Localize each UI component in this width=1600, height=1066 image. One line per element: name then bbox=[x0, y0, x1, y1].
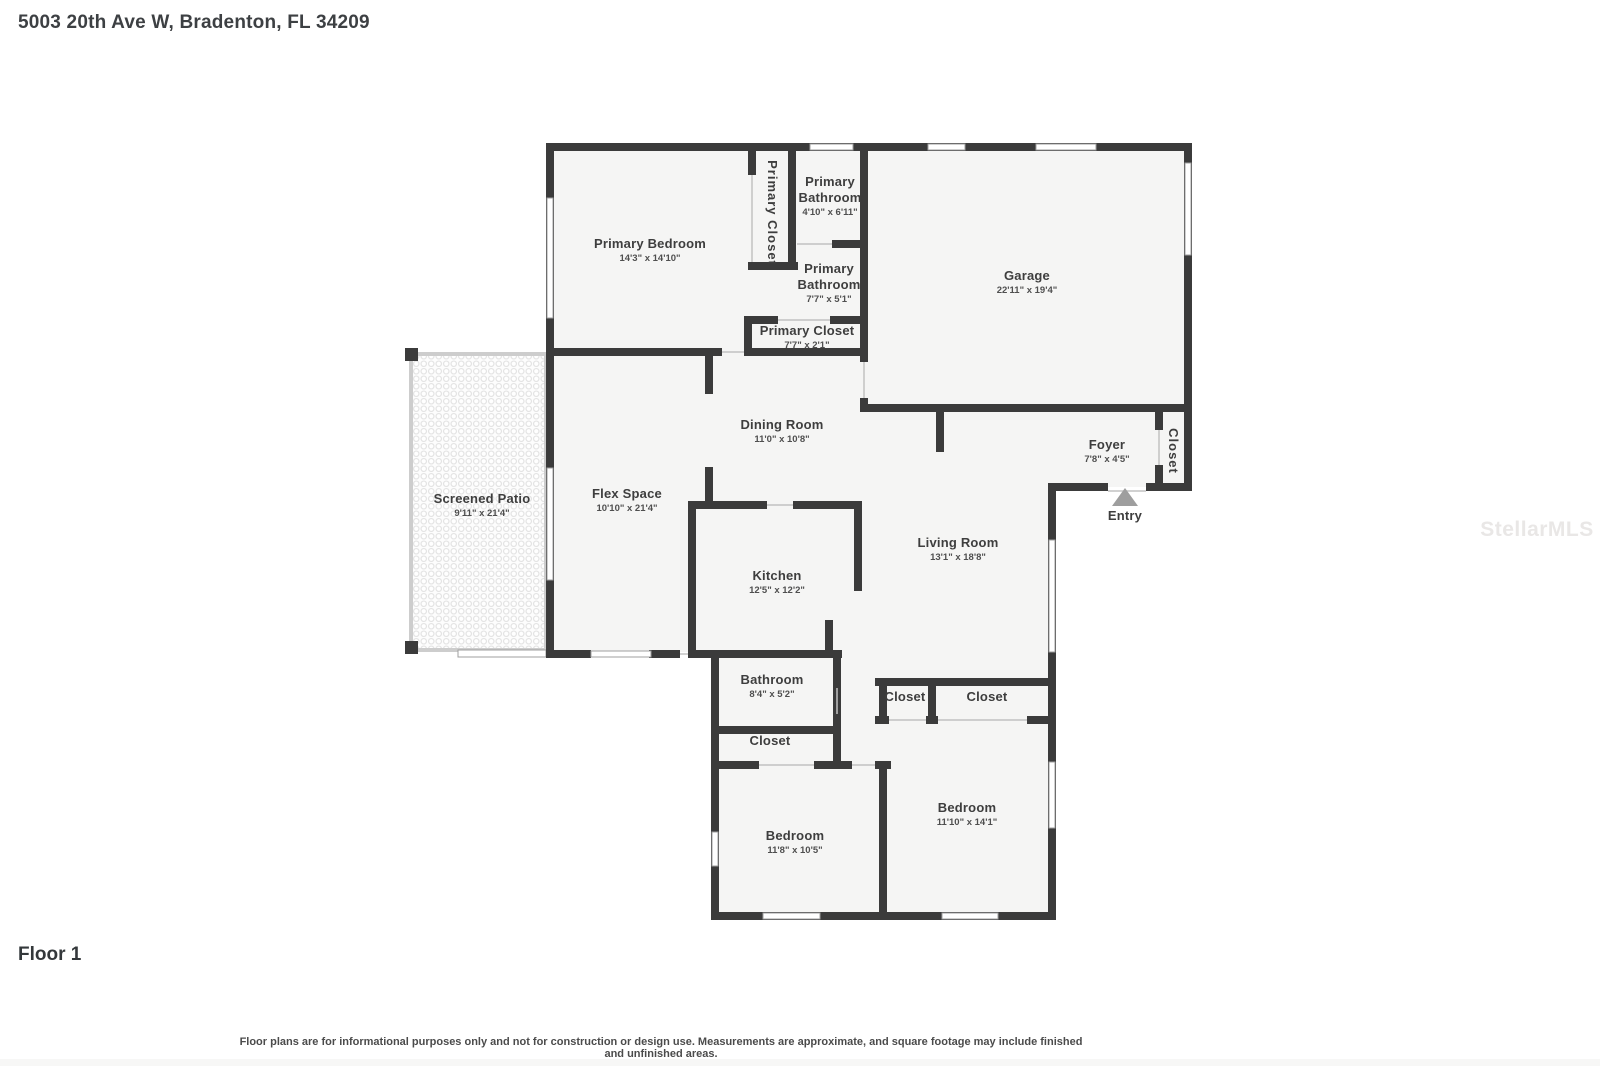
room-label-hall-closet: Closet bbox=[750, 733, 791, 749]
room-label-screened-patio: Screened Patio 9'11" x 21'4" bbox=[434, 491, 531, 519]
room-label-flex-space: Flex Space 10'10" x 21'4" bbox=[592, 486, 662, 514]
disclaimer-text: Floor plans are for informational purpos… bbox=[235, 1036, 1087, 1060]
room-label-foyer-closet: Closet bbox=[1165, 428, 1181, 474]
room-label-kitchen: Kitchen 12'5" x 12'2" bbox=[749, 568, 805, 596]
entry-label: Entry bbox=[1108, 508, 1142, 524]
room-label-bedroom-right: Bedroom 11'10" x 14'1" bbox=[937, 800, 998, 828]
bottom-strip bbox=[0, 1059, 1600, 1066]
floor-plan-drawing bbox=[0, 0, 1600, 1066]
room-label-bedroom-left: Bedroom 11'8" x 10'5" bbox=[766, 828, 824, 856]
watermark: StellarMLS bbox=[1480, 518, 1594, 542]
room-label-foyer: Foyer 7'8" x 4'5" bbox=[1084, 437, 1129, 465]
room-label-primary-bathroom-1: Primary Bathroom 4'10" x 6'11" bbox=[786, 174, 874, 218]
room-label-bathroom: Bathroom 8'4" x 5'2" bbox=[741, 672, 804, 700]
room-label-primary-bedroom: Primary Bedroom 14'3" x 14'10" bbox=[594, 236, 706, 264]
room-label-primary-closet: Primary Closet 7'7" x 2'1" bbox=[760, 323, 855, 351]
room-label-living-room: Living Room 13'1" x 18'8" bbox=[918, 535, 999, 563]
floor-label: Floor 1 bbox=[18, 944, 81, 966]
room-label-garage: Garage 22'11" x 19'4" bbox=[997, 268, 1058, 296]
room-label-closet-small: Closet bbox=[885, 689, 926, 705]
floor-plan-page: 5003 20th Ave W, Bradenton, FL 34209 bbox=[0, 0, 1600, 1066]
room-label-primary-closet-walkin: Primary Closet bbox=[764, 160, 780, 266]
room-label-dining-room: Dining Room 11'0" x 10'8" bbox=[740, 417, 823, 445]
room-label-primary-bathroom-2: Primary Bathroom 7'7" x 5'1" bbox=[785, 261, 873, 305]
room-label-closet-wide: Closet bbox=[967, 689, 1008, 705]
